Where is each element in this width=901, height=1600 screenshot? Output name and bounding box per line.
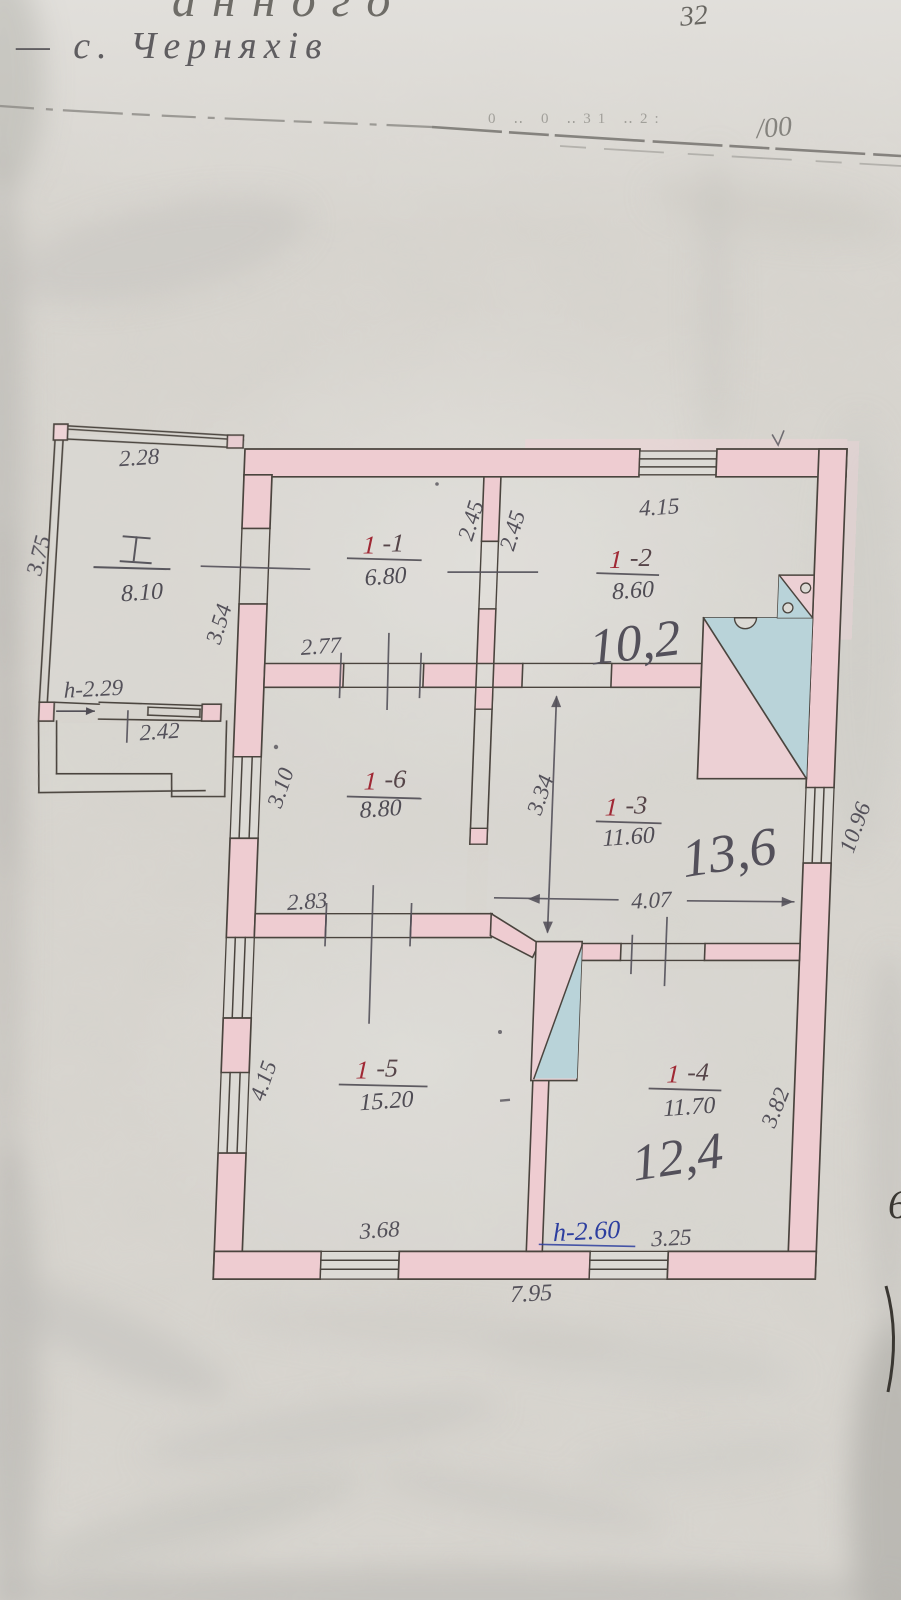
svg-text:1: 1 (355, 1056, 369, 1085)
svg-text:4.07: 4.07 (631, 887, 673, 914)
svg-text:-5: -5 (376, 1054, 399, 1083)
svg-text:1: 1 (362, 530, 376, 559)
svg-text:15.20: 15.20 (359, 1087, 414, 1117)
svg-text:-3: -3 (625, 791, 648, 820)
svg-text:1: 1 (666, 1060, 680, 1089)
svg-text:11.70: 11.70 (663, 1093, 716, 1122)
svg-text:2.28: 2.28 (119, 444, 161, 472)
svg-text:8.10: 8.10 (121, 579, 164, 608)
svg-text:1: 1 (604, 793, 618, 822)
svg-text:6.80: 6.80 (364, 563, 407, 592)
svg-text:h-2.29: h-2.29 (64, 675, 124, 703)
svg-text:6: 6 (888, 1182, 901, 1227)
svg-text:0 ‥ 0 ‥31 ‥2:: 0 ‥ 0 ‥31 ‥2: (488, 111, 666, 127)
svg-text:/00: /00 (753, 111, 793, 145)
svg-text:-4: -4 (687, 1058, 710, 1087)
svg-text:— с. Черняхів: — с. Черняхів (15, 25, 329, 67)
svg-text:7.95: 7.95 (510, 1280, 552, 1308)
svg-text:-2: -2 (629, 543, 652, 572)
svg-text:анного: анного (172, 0, 406, 27)
svg-text:1: 1 (363, 767, 377, 796)
svg-text:3.68: 3.68 (358, 1216, 401, 1244)
svg-text:10,2: 10,2 (587, 609, 683, 676)
svg-text:11.60: 11.60 (602, 823, 655, 852)
svg-text:2.42: 2.42 (139, 718, 180, 746)
svg-text:-1: -1 (382, 528, 405, 557)
svg-text:2.83: 2.83 (287, 887, 328, 915)
svg-text:2.77: 2.77 (300, 632, 343, 660)
svg-text:8.80: 8.80 (359, 795, 402, 824)
svg-text:3.25: 3.25 (650, 1224, 692, 1251)
svg-text:h-2.60: h-2.60 (553, 1215, 621, 1247)
svg-text:1: 1 (609, 545, 623, 574)
svg-text:4.15: 4.15 (639, 493, 680, 521)
svg-text:-6: -6 (384, 765, 407, 794)
svg-text:32: 32 (678, 0, 710, 33)
svg-text:8.60: 8.60 (612, 577, 655, 606)
